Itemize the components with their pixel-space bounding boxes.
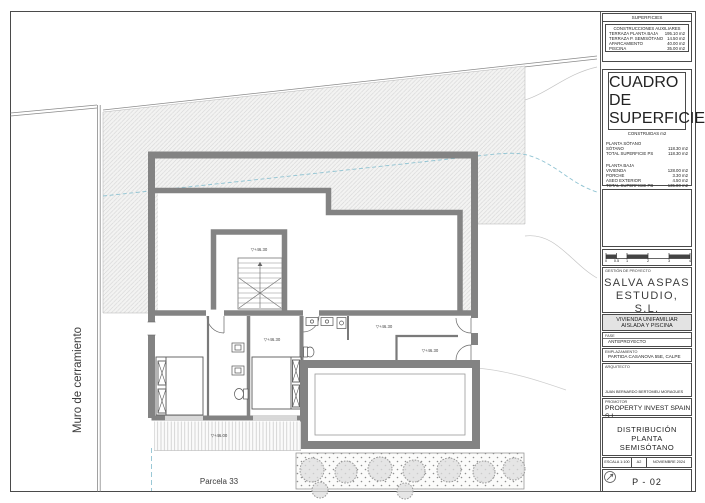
row-label: TOTAL SUPERFICIE PB — [606, 183, 653, 188]
row-value: 35.00 m2 — [667, 46, 685, 51]
arquitecto-label: ARQUITECTO — [603, 364, 691, 369]
garden-band — [296, 453, 525, 499]
scale-tick: 3 — [668, 259, 670, 263]
staircase — [211, 229, 288, 311]
empty-box — [602, 189, 692, 247]
parcela-label: Parcela 33 — [200, 477, 239, 486]
table-row: TOTAL SUPERFICIE PS 118.30 m2 — [603, 151, 691, 156]
scale-bar: 0 0.5 1 2 3 4 — [602, 249, 692, 266]
table-row: TOTAL SUPERFICIE PB 135.80 m2 — [603, 183, 691, 188]
drawing-title-line2: PLANTA SEMISÓTANO — [603, 434, 691, 452]
hall-fixtures — [304, 318, 347, 358]
floor-plan-canvas: Muro de cerramiento Parcela 33 ▽+46.30 ▽… — [0, 0, 705, 503]
north-arrow-icon — [603, 470, 617, 484]
pool — [300, 360, 480, 449]
promotor-box: PROMOTOR PROPERTY INVEST SPAIN S.L. — [602, 398, 692, 416]
bed-2 — [252, 357, 301, 409]
superficies-table: SUPERFICIES CONSTRUCCIONES AUXILIARES TE… — [602, 13, 692, 62]
row-value: 118.30 m2 — [668, 151, 688, 156]
shrub-icon — [300, 458, 324, 482]
scale-tick: 4 — [689, 259, 691, 263]
project-line1: VIVIENDA UNIFAMILIAR — [603, 315, 691, 323]
arquitecto-box: ARQUITECTO JUAN BERNARDO BERTOMEU MORAGU… — [602, 363, 692, 397]
studio-box: GESTIÓN DE PROYECTO SALVA ASPAS ESTUDIO,… — [602, 267, 692, 313]
project-line2: AISLADA Y PISCINA — [603, 323, 691, 329]
level-marker-room: ▽+46.30 — [422, 348, 439, 353]
row-label: PISCINA — [609, 46, 626, 51]
scale-tick: 1 — [626, 259, 628, 263]
terrace — [154, 422, 301, 451]
level-marker-hall: ▽+46.30 — [376, 324, 393, 329]
cuadro-title: CUADRO DE SUPERFICIES — [608, 72, 686, 130]
meta-strip: ESCALA 1:100 A2 NOVIEMBRE 2024 — [602, 457, 692, 468]
drawing-sheet: Muro de cerramiento Parcela 33 ▽+46.30 ▽… — [0, 0, 705, 503]
drawing-title-line1: DISTRIBUCIÓN — [603, 425, 691, 434]
promotor-label: PROMOTOR — [603, 399, 691, 404]
meta-escala: ESCALA 1:100 — [603, 458, 632, 467]
studio-name-line1: SALVA ASPAS — [603, 277, 691, 290]
bed-1 — [156, 357, 203, 415]
fase-box: FASE ANTEPROYECTO — [602, 332, 692, 347]
scale-tick: 2 — [647, 259, 649, 263]
level-marker-stair: ▽+46.30 — [251, 247, 268, 252]
muro-de-cerramiento-label: Muro de cerramiento — [72, 327, 84, 433]
emplazamiento-box: EMPLAZAMIENTO PARTIDA CASANOVA 55E, CALP… — [602, 348, 692, 362]
sheet-number-box: P - 02 — [602, 469, 692, 492]
scale-tick: 0.5 — [614, 259, 619, 263]
arquitecto-value: JUAN BERNARDO BERTOMEU MORAGUES — [605, 390, 683, 395]
studio-name-line2: ESTUDIO, S.L. — [603, 290, 691, 316]
meta-fecha: NOVIEMBRE 2024 — [647, 458, 691, 467]
studio-field-label: GESTIÓN DE PROYECTO — [603, 268, 691, 273]
meta-formato: A2 — [632, 458, 647, 467]
scale-tick: 0 — [605, 259, 607, 263]
cuadro-superficies-table: CUADRO DE SUPERFICIES CONSTRUIDAS m2 PLA… — [602, 69, 692, 186]
fase-value: ANTEPROYECTO — [603, 339, 691, 344]
table-row: PISCINA 35.00 m2 — [606, 46, 688, 51]
emplazamiento-value: PARTIDA CASANOVA 55E, CALPE — [603, 354, 691, 359]
project-box: VIVIENDA UNIFAMILIAR AISLADA Y PISCINA — [602, 314, 692, 331]
level-marker-terrace: ▽+46.00 — [211, 433, 228, 438]
superficies-title: SUPERFICIES — [603, 14, 691, 22]
level-marker-bedroom: ▽+46.30 — [264, 337, 281, 342]
row-value: 135.80 m2 — [668, 183, 688, 188]
row-label: TOTAL SUPERFICIE PS — [606, 151, 653, 156]
drawing-title-box: DISTRIBUCIÓN PLANTA SEMISÓTANO — [602, 417, 692, 456]
bathroom-fixtures — [232, 343, 248, 400]
